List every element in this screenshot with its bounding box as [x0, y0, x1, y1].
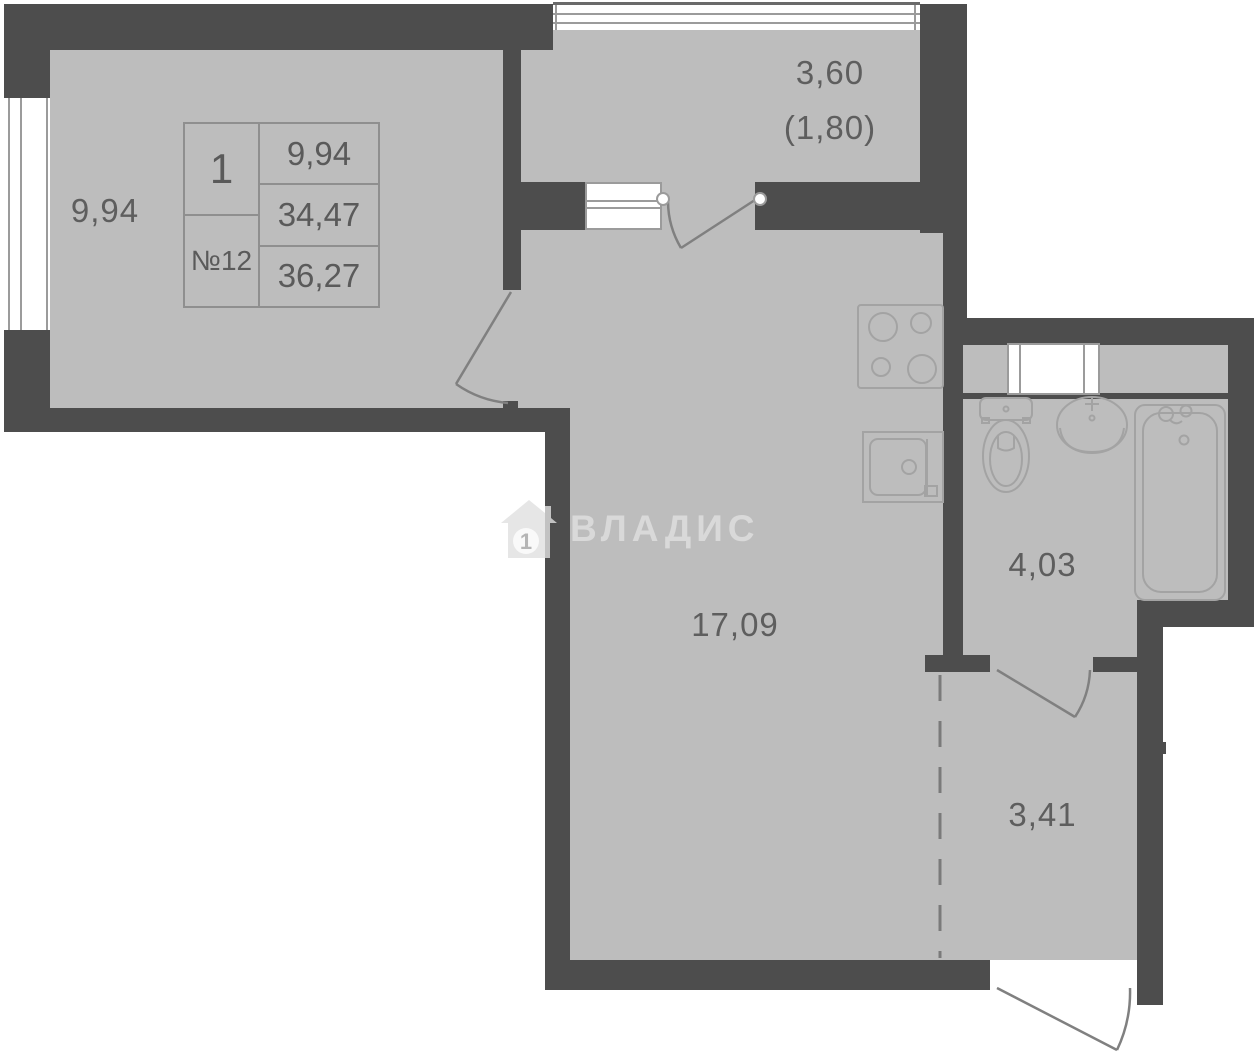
toilet-icon — [980, 398, 1032, 492]
balcony-reduced-area-label: (1,80) — [775, 109, 885, 147]
main-room-area-label: 17,09 — [685, 606, 785, 644]
floor-plan: 9,94 3,60 (1,80) 17,09 4,03 3,41 1 №12 9… — [0, 0, 1254, 1057]
hallway-area-label: 3,41 — [995, 796, 1090, 834]
unit-rooms-count: 1 — [185, 124, 258, 214]
entry-door — [997, 988, 1130, 1050]
unit-total-area: 36,27 — [260, 245, 378, 306]
stove-icon — [858, 305, 943, 388]
unit-number: №12 — [185, 214, 258, 306]
living-room-door — [456, 292, 511, 403]
bathtub-icon — [1135, 405, 1225, 600]
bathroom-area-label: 4,03 — [995, 546, 1090, 584]
unit-living-area: 9,94 — [260, 124, 378, 183]
washbasin-icon — [1057, 397, 1127, 453]
living-room-area-label: 9,94 — [60, 192, 150, 230]
unit-area-no-balcony: 34,47 — [260, 183, 378, 244]
balcony-door-hinge — [657, 193, 669, 205]
kitchen-sink-icon — [863, 432, 943, 502]
balcony-door-hinge — [754, 193, 766, 205]
balcony-area-label: 3,60 — [785, 54, 875, 92]
balcony-door — [668, 198, 758, 248]
bathroom-door — [997, 670, 1090, 717]
unit-info-table: 1 №12 9,94 34,47 36,27 — [183, 122, 380, 308]
